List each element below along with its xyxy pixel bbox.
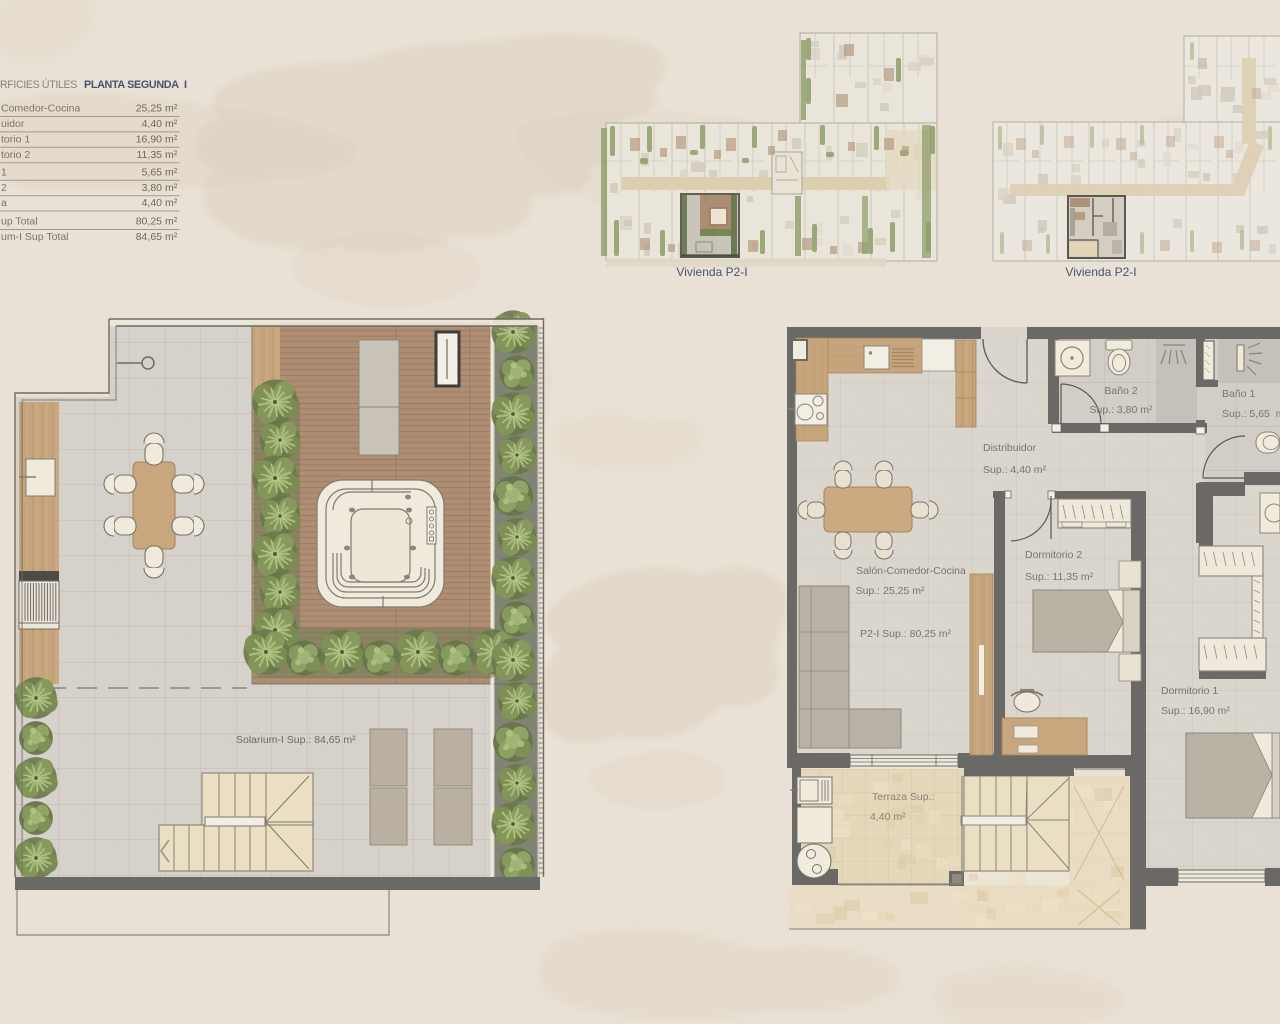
svg-text:m²: m² xyxy=(165,103,178,115)
svg-text:m²: m² xyxy=(165,133,178,145)
svg-text:Vivienda P2-I: Vivienda P2-I xyxy=(676,265,747,279)
svg-text:uidor: uidor xyxy=(1,118,25,130)
svg-text:4,40 m²: 4,40 m² xyxy=(870,811,906,823)
svg-text:Dormitorio 1: Dormitorio 1 xyxy=(1161,685,1218,697)
svg-text:Sup.: 5,65 m: Sup.: 5,65 m xyxy=(1222,408,1280,420)
svg-text:RFICIES ÚTILES: RFICIES ÚTILES xyxy=(0,78,77,91)
svg-text:Distribuidor: Distribuidor xyxy=(983,442,1037,454)
svg-text:Sup.: 11,35 m²: Sup.: 11,35 m² xyxy=(1025,571,1094,583)
svg-text:Comedor-Cocina: Comedor-Cocina xyxy=(1,103,81,115)
svg-text:m²: m² xyxy=(165,182,178,194)
svg-text:Sup.: 3,80 m²: Sup.: 3,80 m² xyxy=(1089,404,1153,416)
svg-text:Baño 1: Baño 1 xyxy=(1222,388,1255,400)
svg-text:3,80: 3,80 xyxy=(142,182,163,194)
svg-text:m²: m² xyxy=(165,118,178,130)
svg-text:4,40: 4,40 xyxy=(142,118,163,130)
svg-text:Sup.: 4,40 m²: Sup.: 4,40 m² xyxy=(983,464,1047,476)
svg-text:PLANTA SEGUNDA I: PLANTA SEGUNDA I xyxy=(84,79,187,91)
svg-text:2: 2 xyxy=(1,182,7,194)
svg-text:1: 1 xyxy=(1,166,7,178)
svg-text:4,40: 4,40 xyxy=(142,197,163,209)
svg-text:torio 2: torio 2 xyxy=(1,149,30,161)
svg-text:84,65: 84,65 xyxy=(136,231,162,243)
svg-text:m²: m² xyxy=(165,149,178,161)
svg-text:Salón-Comedor-Cocina: Salón-Comedor-Cocina xyxy=(856,565,966,577)
svg-text:11,35: 11,35 xyxy=(137,149,163,161)
svg-text:um-I Sup Total: um-I Sup Total xyxy=(1,231,69,243)
svg-text:a: a xyxy=(1,197,7,209)
svg-text:Baño 2: Baño 2 xyxy=(1104,385,1137,397)
svg-text:m²: m² xyxy=(165,216,178,228)
svg-text:25,25: 25,25 xyxy=(136,103,162,115)
svg-text:torio 1: torio 1 xyxy=(1,133,30,145)
svg-text:Sup.: 25,25 m²: Sup.: 25,25 m² xyxy=(856,585,925,597)
svg-text:P2-I Sup.: 80,25 m²: P2-I Sup.: 80,25 m² xyxy=(860,628,952,640)
svg-text:m²: m² xyxy=(165,197,178,209)
svg-text:80,25: 80,25 xyxy=(136,216,162,228)
svg-text:m²: m² xyxy=(165,231,178,243)
svg-text:Terraza Sup.:: Terraza Sup.: xyxy=(872,791,934,803)
svg-text:16,90: 16,90 xyxy=(136,133,162,145)
svg-text:m²: m² xyxy=(165,166,178,178)
svg-text:Vivienda P2-I: Vivienda P2-I xyxy=(1065,265,1136,279)
svg-text:Solarium-I Sup.: 84,65 m²: Solarium-I Sup.: 84,65 m² xyxy=(236,734,356,746)
svg-text:5,65: 5,65 xyxy=(142,166,163,178)
svg-text:up Total: up Total xyxy=(1,216,38,228)
svg-text:Dormitorio 2: Dormitorio 2 xyxy=(1025,549,1082,561)
svg-text:Sup.: 16,90 m²: Sup.: 16,90 m² xyxy=(1161,705,1230,717)
